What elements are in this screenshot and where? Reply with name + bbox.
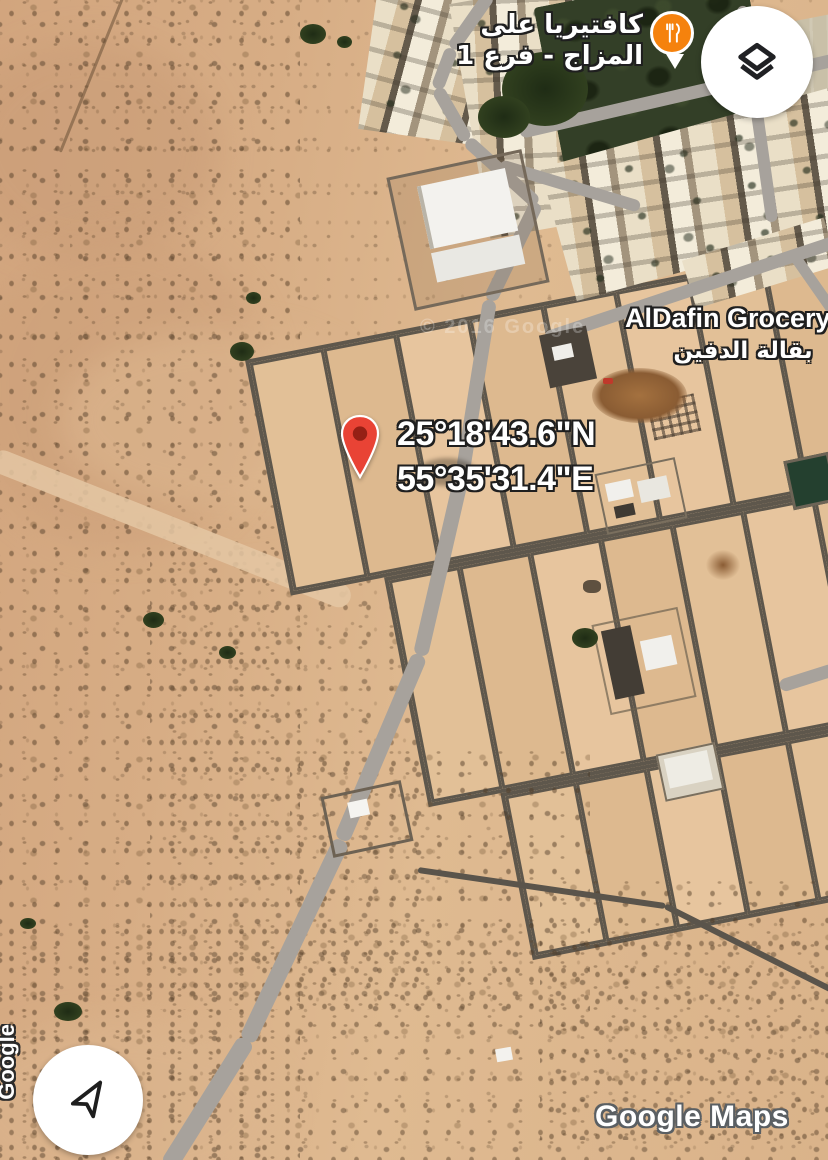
place-label-cafeteria[interactable]: كافتيريا على المزاج - فرع 1 bbox=[408, 10, 643, 71]
small-building-roof bbox=[552, 343, 574, 361]
tree bbox=[246, 292, 261, 304]
tree bbox=[300, 24, 326, 44]
google-attribution-side: Google bbox=[0, 1024, 21, 1160]
scrub-texture bbox=[70, 0, 410, 360]
tree bbox=[572, 628, 598, 648]
navigation-arrow-icon bbox=[58, 1070, 117, 1129]
tree bbox=[20, 918, 36, 929]
coordinate-longitude: 55°35'31.4"E bbox=[397, 457, 595, 502]
place-label-grocery-arabic[interactable]: بقالة الدفين bbox=[668, 338, 818, 364]
construction-compound bbox=[591, 607, 696, 715]
construction-building bbox=[637, 475, 671, 503]
tree bbox=[478, 96, 530, 138]
place-label-grocery[interactable]: AlDafin Grocery bbox=[625, 303, 828, 334]
google-maps-attribution: Google Maps bbox=[595, 1100, 789, 1134]
dropped-pin-icon[interactable] bbox=[336, 404, 384, 490]
cutlery-icon bbox=[659, 20, 685, 46]
tree bbox=[143, 612, 164, 628]
restaurant-pin-icon[interactable] bbox=[650, 11, 694, 55]
construction-building bbox=[614, 503, 636, 519]
construction-building bbox=[605, 479, 634, 502]
layers-button[interactable] bbox=[701, 6, 813, 118]
my-location-button[interactable] bbox=[33, 1045, 143, 1155]
construction-building bbox=[640, 635, 678, 671]
shadow-blob bbox=[583, 580, 601, 593]
hut bbox=[347, 799, 370, 819]
pin-coordinates[interactable]: 25°18'43.6"N 55°35'31.4"E bbox=[397, 412, 595, 502]
tree bbox=[219, 646, 236, 659]
tile-watermark: © 2016 Google bbox=[420, 316, 585, 339]
map-canvas[interactable]: © 2016 Google كافتيريا على المزاج - فرع … bbox=[0, 0, 828, 1160]
hut bbox=[495, 1047, 513, 1063]
tree bbox=[337, 36, 352, 48]
tree bbox=[54, 1002, 82, 1021]
cafeteria-label-line1: كافتيريا على bbox=[408, 10, 643, 41]
coordinate-latitude: 25°18'43.6"N bbox=[397, 412, 595, 457]
google-attribution-side-text: Google bbox=[0, 1024, 20, 1100]
tree bbox=[230, 342, 254, 361]
dirt-mound bbox=[706, 550, 740, 580]
restaurant-pin-tail bbox=[666, 54, 684, 69]
dirt-mound bbox=[592, 368, 687, 423]
construction-building bbox=[601, 625, 645, 700]
layers-icon bbox=[730, 35, 784, 89]
equipment bbox=[603, 378, 613, 384]
warehouse-compound bbox=[386, 149, 549, 311]
cafeteria-label-line2: المزاج - فرع 1 bbox=[408, 41, 643, 72]
small-building-roof bbox=[664, 750, 713, 788]
